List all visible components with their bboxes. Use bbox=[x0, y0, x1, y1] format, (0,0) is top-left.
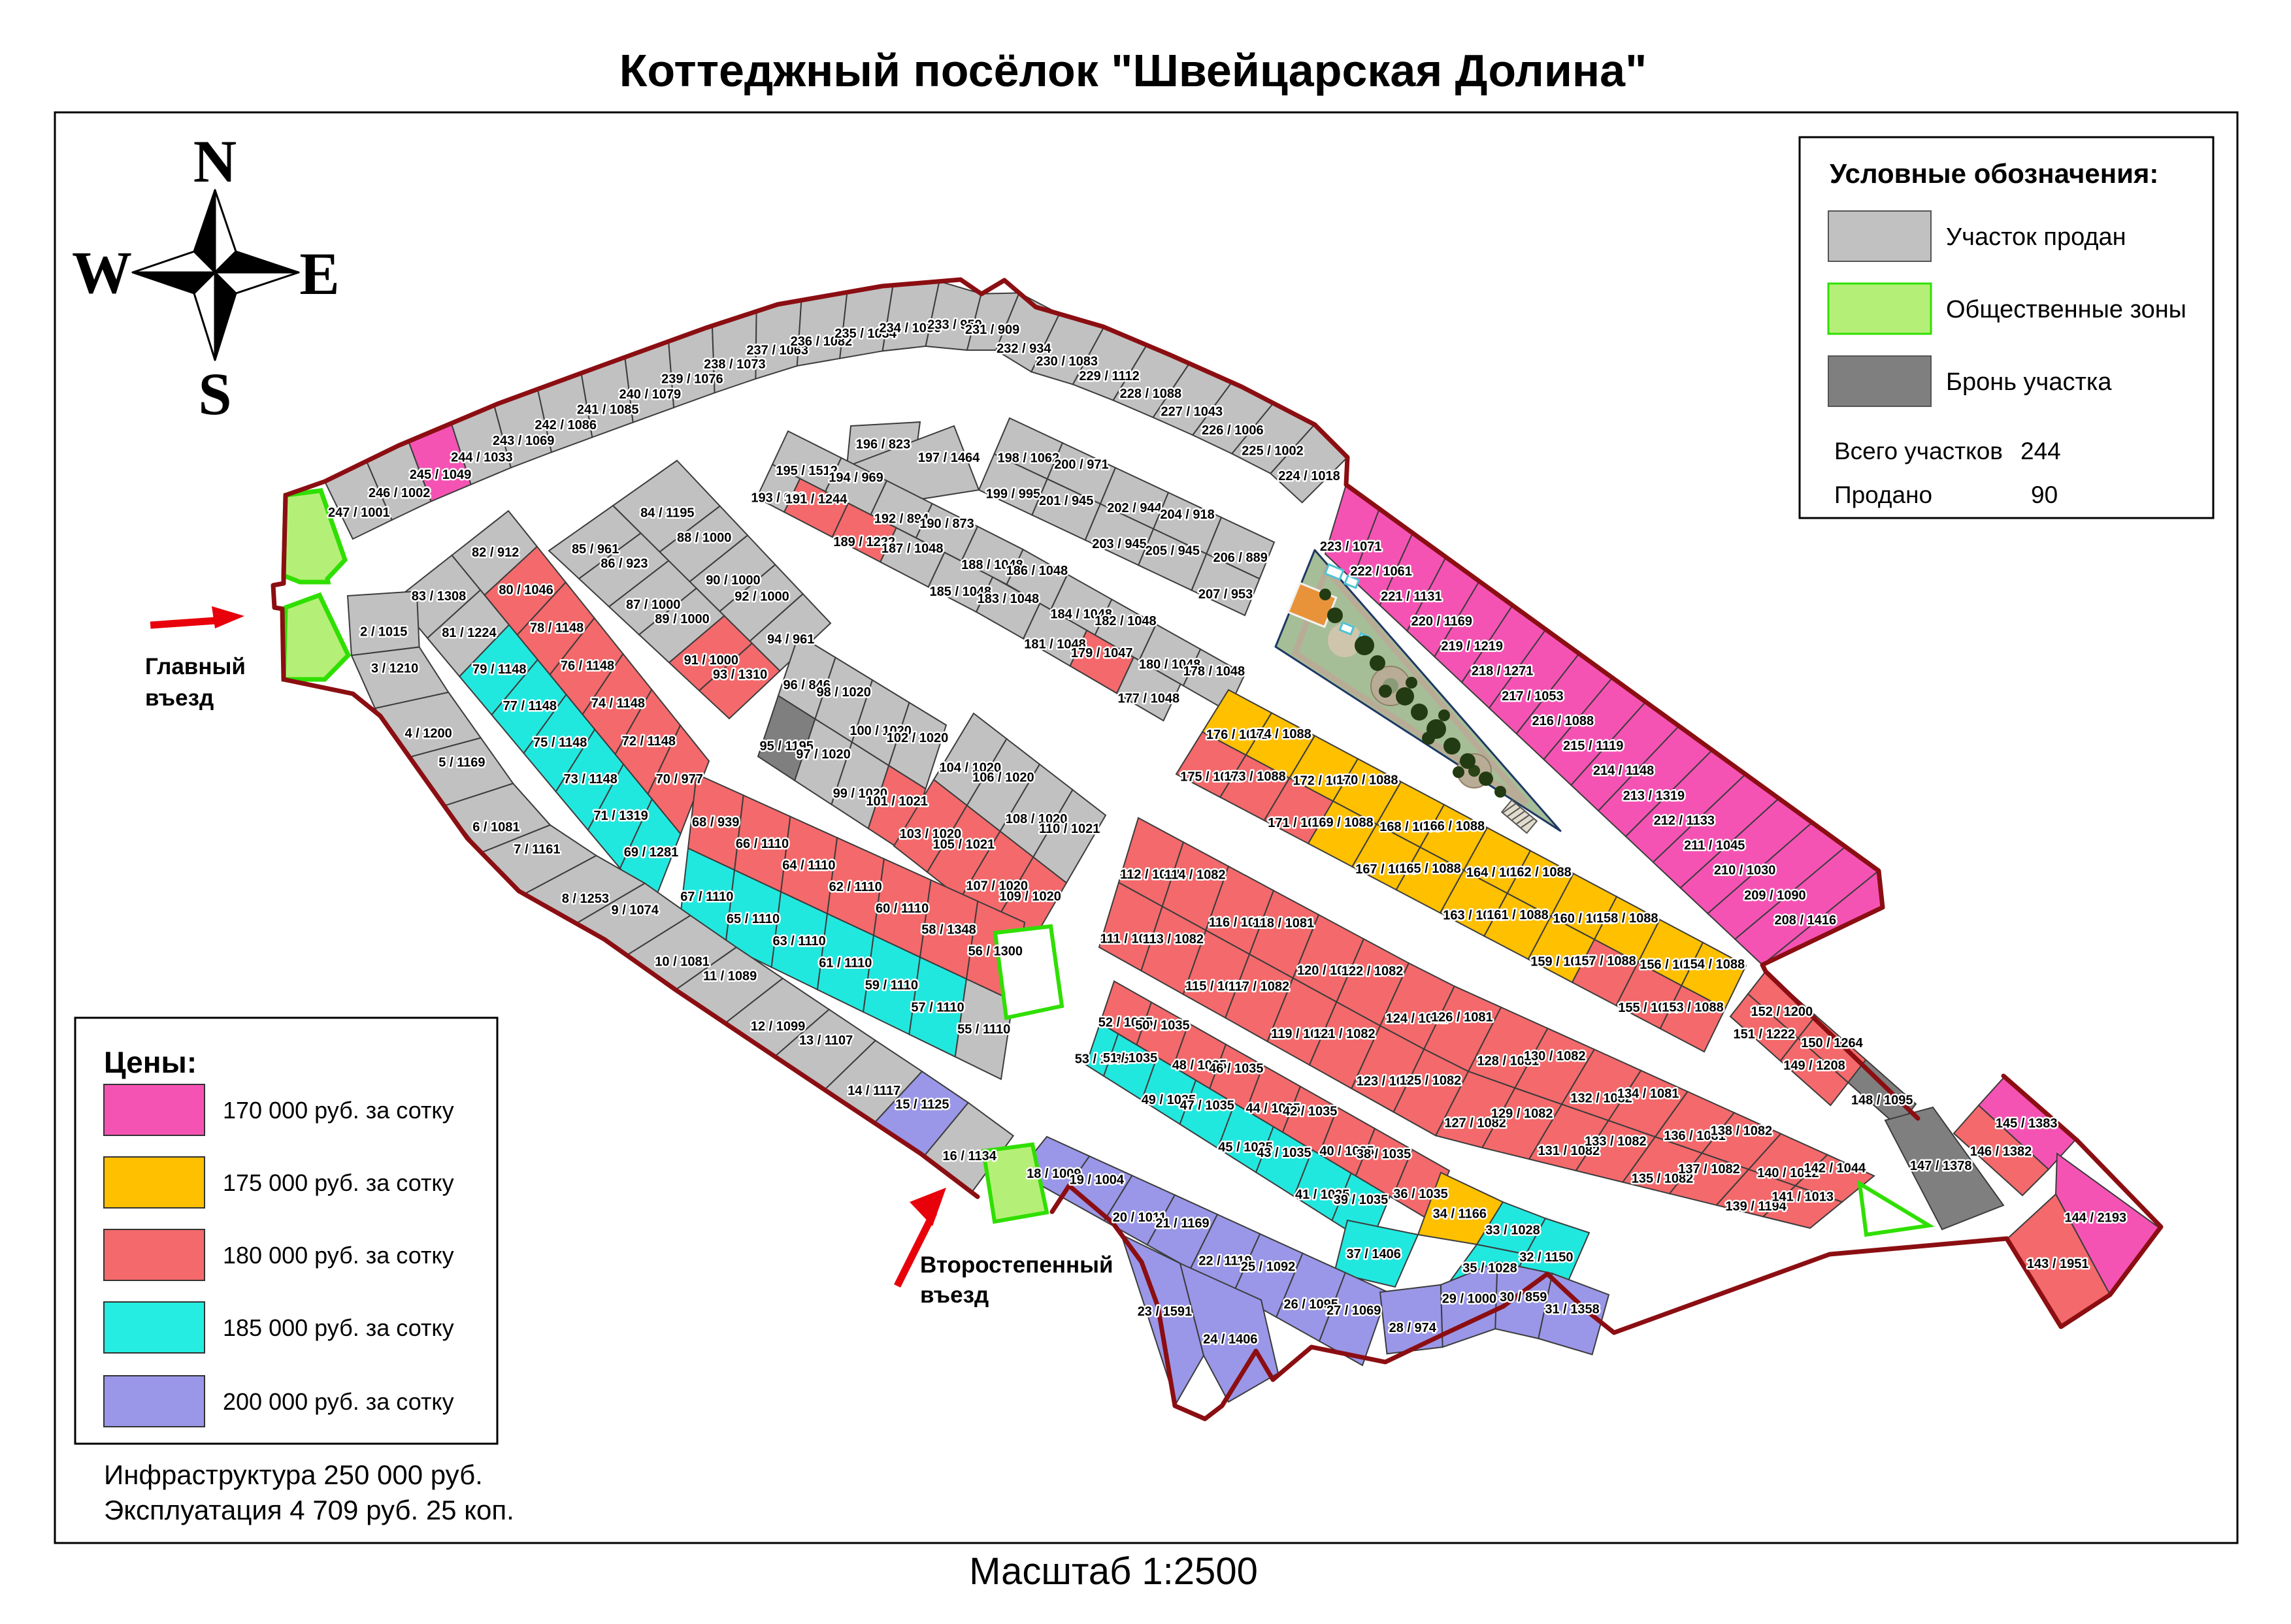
svg-text:32 / 1150: 32 / 1150 bbox=[1519, 1250, 1573, 1265]
svg-text:201 / 945: 201 / 945 bbox=[1039, 494, 1093, 508]
svg-text:37 / 1406: 37 / 1406 bbox=[1346, 1247, 1400, 1261]
svg-text:138 / 1082: 138 / 1082 bbox=[1711, 1124, 1773, 1139]
svg-text:231 / 909: 231 / 909 bbox=[965, 323, 1019, 337]
svg-text:79 / 1148: 79 / 1148 bbox=[472, 662, 526, 677]
svg-text:82 / 912: 82 / 912 bbox=[472, 545, 519, 560]
svg-text:161 / 1088: 161 / 1088 bbox=[1487, 908, 1549, 922]
svg-text:86 / 923: 86 / 923 bbox=[601, 557, 648, 571]
svg-text:66 / 1110: 66 / 1110 bbox=[736, 837, 789, 851]
svg-text:137 / 1082: 137 / 1082 bbox=[1678, 1162, 1740, 1177]
svg-text:148 / 1095: 148 / 1095 bbox=[1851, 1094, 1913, 1108]
svg-text:19 / 1004: 19 / 1004 bbox=[1070, 1173, 1125, 1188]
svg-text:30 / 859: 30 / 859 bbox=[1500, 1290, 1547, 1305]
svg-text:212 / 1133: 212 / 1133 bbox=[1654, 813, 1715, 828]
svg-text:180 000 руб. за сотку: 180 000 руб. за сотку bbox=[223, 1242, 454, 1269]
svg-text:68 / 939: 68 / 939 bbox=[692, 815, 739, 830]
svg-text:133 / 1082: 133 / 1082 bbox=[1585, 1134, 1647, 1148]
svg-text:143 / 1951: 143 / 1951 bbox=[2027, 1257, 2089, 1271]
svg-text:15 / 1125: 15 / 1125 bbox=[895, 1097, 949, 1112]
svg-text:81 / 1224: 81 / 1224 bbox=[442, 626, 497, 640]
svg-text:62 / 1110: 62 / 1110 bbox=[829, 880, 882, 894]
svg-text:74 / 1148: 74 / 1148 bbox=[591, 696, 645, 711]
svg-text:75 / 1148: 75 / 1148 bbox=[533, 736, 587, 750]
svg-text:126 / 1081: 126 / 1081 bbox=[1431, 1010, 1493, 1024]
svg-text:122 / 1082: 122 / 1082 bbox=[1342, 964, 1404, 979]
svg-text:Всего участков: Всего участков bbox=[1834, 438, 2003, 464]
svg-text:229 / 1112: 229 / 1112 bbox=[1079, 369, 1139, 383]
svg-text:33 / 1028: 33 / 1028 bbox=[1485, 1224, 1540, 1238]
svg-text:N: N bbox=[193, 128, 237, 195]
svg-text:14 / 1117: 14 / 1117 bbox=[848, 1084, 900, 1098]
svg-text:101 / 1021: 101 / 1021 bbox=[866, 794, 928, 809]
svg-text:173 / 1088: 173 / 1088 bbox=[1224, 770, 1286, 784]
svg-text:65 / 1110: 65 / 1110 bbox=[727, 912, 780, 926]
svg-text:10 / 1081: 10 / 1081 bbox=[655, 954, 709, 969]
svg-text:12 / 1099: 12 / 1099 bbox=[751, 1020, 805, 1034]
svg-text:29 / 1000: 29 / 1000 bbox=[1442, 1292, 1496, 1307]
svg-text:207 / 953: 207 / 953 bbox=[1198, 587, 1253, 602]
svg-text:59 / 1110: 59 / 1110 bbox=[865, 978, 918, 992]
svg-text:185 000 руб. за сотку: 185 000 руб. за сотку bbox=[223, 1314, 454, 1341]
svg-text:60 / 1110: 60 / 1110 bbox=[876, 901, 929, 916]
svg-text:244: 244 bbox=[2020, 438, 2061, 464]
svg-text:55 / 1110: 55 / 1110 bbox=[957, 1022, 1010, 1037]
svg-text:38 / 1035: 38 / 1035 bbox=[1357, 1147, 1411, 1161]
svg-text:211 / 1045: 211 / 1045 bbox=[1684, 839, 1745, 853]
svg-text:Главный: Главный bbox=[145, 654, 246, 679]
svg-text:227 / 1043: 227 / 1043 bbox=[1161, 405, 1223, 419]
svg-text:244 / 1033: 244 / 1033 bbox=[451, 451, 513, 465]
svg-text:56 / 1300: 56 / 1300 bbox=[968, 945, 1023, 959]
svg-text:182 / 1048: 182 / 1048 bbox=[1095, 614, 1157, 628]
svg-text:Условные обозначения:: Условные обозначения: bbox=[1830, 158, 2158, 189]
svg-text:78 / 1148: 78 / 1148 bbox=[530, 621, 584, 636]
svg-text:72 / 1148: 72 / 1148 bbox=[622, 734, 676, 749]
svg-text:228 / 1088: 228 / 1088 bbox=[1120, 387, 1182, 401]
svg-text:186 / 1048: 186 / 1048 bbox=[1006, 564, 1068, 578]
svg-text:11 / 1089: 11 / 1089 bbox=[703, 969, 757, 983]
svg-text:98 / 1020: 98 / 1020 bbox=[816, 685, 870, 700]
svg-text:198 / 1062: 198 / 1062 bbox=[998, 451, 1060, 466]
svg-text:206 / 889: 206 / 889 bbox=[1213, 551, 1267, 565]
svg-text:102 / 1020: 102 / 1020 bbox=[887, 731, 949, 745]
svg-text:197 / 1464: 197 / 1464 bbox=[918, 451, 980, 465]
svg-text:170 000 руб. за сотку: 170 000 руб. за сотку bbox=[223, 1097, 454, 1124]
svg-text:106 / 1020: 106 / 1020 bbox=[972, 771, 1034, 785]
svg-text:5 / 1169: 5 / 1169 bbox=[438, 755, 485, 770]
svg-text:203 / 945: 203 / 945 bbox=[1092, 537, 1146, 551]
svg-text:90 / 1000: 90 / 1000 bbox=[706, 574, 760, 588]
svg-text:85 / 961: 85 / 961 bbox=[572, 542, 619, 557]
svg-text:158 / 1088: 158 / 1088 bbox=[1596, 911, 1658, 926]
svg-text:113 / 1082: 113 / 1082 bbox=[1143, 932, 1204, 947]
svg-text:179 / 1047: 179 / 1047 bbox=[1071, 646, 1133, 660]
svg-text:80 / 1046: 80 / 1046 bbox=[499, 583, 553, 598]
svg-text:31 / 1358: 31 / 1358 bbox=[1545, 1302, 1599, 1316]
svg-text:Масштаб 1:2500: Масштаб 1:2500 bbox=[969, 1550, 1258, 1593]
svg-text:въезд: въезд bbox=[920, 1282, 989, 1308]
svg-text:217 / 1053: 217 / 1053 bbox=[1502, 689, 1564, 704]
svg-text:Коттеджный посёлок "Швейцарска: Коттеджный посёлок "Швейцарская Долина" bbox=[619, 45, 1647, 96]
svg-text:210 / 1030: 210 / 1030 bbox=[1714, 864, 1776, 878]
svg-text:105 / 1021: 105 / 1021 bbox=[933, 837, 995, 852]
svg-text:142 / 1044: 142 / 1044 bbox=[1804, 1161, 1866, 1176]
svg-text:91 / 1000: 91 / 1000 bbox=[684, 653, 738, 668]
svg-text:23 / 1591: 23 / 1591 bbox=[1138, 1305, 1192, 1319]
svg-text:7 / 1161: 7 / 1161 bbox=[514, 842, 560, 856]
svg-text:W: W bbox=[72, 239, 132, 306]
svg-text:145 / 1383: 145 / 1383 bbox=[1996, 1116, 2058, 1131]
svg-text:35 / 1028: 35 / 1028 bbox=[1462, 1261, 1517, 1276]
svg-text:162 / 1088: 162 / 1088 bbox=[1509, 866, 1572, 880]
svg-text:169 / 1088: 169 / 1088 bbox=[1311, 816, 1374, 830]
svg-text:125 / 1082: 125 / 1082 bbox=[1400, 1074, 1462, 1088]
svg-text:46 / 1035: 46 / 1035 bbox=[1209, 1062, 1263, 1076]
svg-text:28 / 974: 28 / 974 bbox=[1389, 1321, 1437, 1335]
svg-text:Инфраструктура 250 000 руб.: Инфраструктура 250 000 руб. bbox=[104, 1459, 483, 1490]
svg-text:57 / 1110: 57 / 1110 bbox=[911, 1000, 964, 1015]
svg-text:196 / 823: 196 / 823 bbox=[856, 438, 910, 452]
svg-text:200 / 971: 200 / 971 bbox=[1054, 458, 1108, 472]
svg-text:121 / 1082: 121 / 1082 bbox=[1313, 1027, 1376, 1041]
svg-text:21 / 1169: 21 / 1169 bbox=[1155, 1216, 1209, 1231]
svg-text:34 / 1166: 34 / 1166 bbox=[1433, 1207, 1487, 1222]
svg-text:243 / 1069: 243 / 1069 bbox=[493, 434, 555, 448]
svg-text:247 / 1001: 247 / 1001 bbox=[328, 506, 390, 520]
svg-text:191 / 1244: 191 / 1244 bbox=[785, 492, 848, 506]
svg-text:89 / 1000: 89 / 1000 bbox=[655, 612, 709, 626]
svg-text:241 / 1085: 241 / 1085 bbox=[577, 403, 639, 417]
svg-text:Бронь участка: Бронь участка bbox=[1946, 368, 2112, 396]
svg-text:183 / 1048: 183 / 1048 bbox=[978, 592, 1040, 606]
svg-text:222 / 1061: 222 / 1061 bbox=[1350, 564, 1412, 579]
svg-text:64 / 1110: 64 / 1110 bbox=[782, 858, 835, 873]
svg-text:Второстепенный: Второстепенный bbox=[920, 1252, 1113, 1278]
svg-text:144 / 2193: 144 / 2193 bbox=[2065, 1211, 2127, 1226]
svg-text:209 / 1090: 209 / 1090 bbox=[1744, 888, 1806, 903]
svg-text:166 / 1088: 166 / 1088 bbox=[1423, 819, 1485, 834]
svg-text:Эксплуатация 4 709 руб. 25 коп: Эксплуатация 4 709 руб. 25 коп. bbox=[104, 1495, 514, 1525]
svg-text:240 / 1079: 240 / 1079 bbox=[619, 387, 682, 402]
svg-text:151 / 1222: 151 / 1222 bbox=[1734, 1028, 1796, 1042]
svg-text:223 / 1071: 223 / 1071 bbox=[1320, 540, 1382, 554]
svg-text:61 / 1110: 61 / 1110 bbox=[819, 956, 872, 971]
svg-text:94 / 961: 94 / 961 bbox=[767, 632, 814, 647]
svg-text:71 / 1319: 71 / 1319 bbox=[593, 809, 648, 823]
svg-text:154 / 1088: 154 / 1088 bbox=[1683, 957, 1745, 971]
svg-text:187 / 1048: 187 / 1048 bbox=[882, 542, 944, 556]
svg-text:224 / 1018: 224 / 1018 bbox=[1278, 469, 1340, 483]
svg-text:въезд: въезд bbox=[145, 685, 214, 711]
svg-text:43 / 1035: 43 / 1035 bbox=[1257, 1146, 1311, 1160]
svg-text:83 / 1308: 83 / 1308 bbox=[412, 589, 466, 604]
svg-text:110 / 1021: 110 / 1021 bbox=[1039, 822, 1100, 836]
svg-text:230 / 1083: 230 / 1083 bbox=[1036, 355, 1098, 369]
svg-text:69 / 1281: 69 / 1281 bbox=[624, 845, 678, 860]
svg-text:200 000 руб. за сотку: 200 000 руб. за сотку bbox=[223, 1388, 454, 1415]
svg-text:16 / 1134: 16 / 1134 bbox=[943, 1149, 997, 1163]
svg-text:134 / 1081: 134 / 1081 bbox=[1617, 1086, 1679, 1101]
svg-text:13 / 1107: 13 / 1107 bbox=[799, 1033, 853, 1048]
svg-text:36 / 1035: 36 / 1035 bbox=[1393, 1187, 1447, 1201]
svg-text:153 / 1088: 153 / 1088 bbox=[1662, 1000, 1724, 1015]
svg-text:175 000 руб. за сотку: 175 000 руб. за сотку bbox=[223, 1169, 454, 1196]
svg-text:165 / 1088: 165 / 1088 bbox=[1399, 862, 1461, 876]
svg-text:177 / 1048: 177 / 1048 bbox=[1118, 692, 1180, 706]
svg-text:214 / 1148: 214 / 1148 bbox=[1593, 764, 1654, 778]
svg-text:4 / 1200: 4 / 1200 bbox=[404, 726, 452, 741]
svg-text:178 / 1048: 178 / 1048 bbox=[1183, 664, 1245, 679]
svg-text:149 / 1208: 149 / 1208 bbox=[1783, 1059, 1845, 1073]
svg-text:226 / 1006: 226 / 1006 bbox=[1202, 423, 1264, 438]
svg-text:202 / 944: 202 / 944 bbox=[1107, 501, 1162, 515]
svg-text:24 / 1406: 24 / 1406 bbox=[1203, 1332, 1257, 1346]
svg-text:146 / 1382: 146 / 1382 bbox=[1970, 1145, 2032, 1159]
svg-text:194 / 969: 194 / 969 bbox=[829, 470, 883, 485]
svg-text:150 / 1264: 150 / 1264 bbox=[1801, 1036, 1863, 1050]
svg-text:213 / 1319: 213 / 1319 bbox=[1623, 788, 1685, 803]
svg-text:204 / 918: 204 / 918 bbox=[1160, 508, 1214, 522]
svg-text:87 / 1000: 87 / 1000 bbox=[626, 598, 680, 612]
svg-text:190 / 873: 190 / 873 bbox=[919, 517, 974, 531]
svg-text:Общественные зоны: Общественные зоны bbox=[1946, 296, 2186, 323]
svg-text:118 / 1081: 118 / 1081 bbox=[1253, 916, 1314, 930]
svg-text:84 / 1195: 84 / 1195 bbox=[640, 506, 694, 521]
svg-text:6 / 1081: 6 / 1081 bbox=[472, 820, 519, 834]
svg-text:Цены:: Цены: bbox=[104, 1045, 197, 1079]
svg-text:93 / 1310: 93 / 1310 bbox=[713, 668, 767, 682]
svg-text:220 / 1169: 220 / 1169 bbox=[1411, 614, 1472, 628]
svg-text:246 / 1002: 246 / 1002 bbox=[369, 486, 431, 500]
svg-text:238 / 1073: 238 / 1073 bbox=[704, 357, 766, 372]
svg-text:117 / 1082: 117 / 1082 bbox=[1228, 980, 1289, 994]
svg-text:3 / 1210: 3 / 1210 bbox=[371, 661, 418, 675]
svg-text:2 / 1015: 2 / 1015 bbox=[360, 625, 407, 640]
svg-text:50 / 1035: 50 / 1035 bbox=[1135, 1018, 1189, 1033]
svg-text:221 / 1131: 221 / 1131 bbox=[1381, 589, 1442, 604]
svg-text:147 / 1378: 147 / 1378 bbox=[1910, 1159, 1972, 1173]
svg-text:215 / 1119: 215 / 1119 bbox=[1563, 739, 1623, 753]
svg-text:225 / 1002: 225 / 1002 bbox=[1242, 444, 1304, 459]
svg-text:205 / 945: 205 / 945 bbox=[1145, 544, 1200, 559]
svg-text:70 / 977: 70 / 977 bbox=[656, 772, 703, 787]
svg-text:97 / 1020: 97 / 1020 bbox=[796, 747, 850, 762]
svg-text:E: E bbox=[299, 240, 339, 307]
svg-text:170 / 1088: 170 / 1088 bbox=[1336, 773, 1398, 788]
svg-text:76 / 1148: 76 / 1148 bbox=[561, 658, 614, 673]
svg-text:239 / 1076: 239 / 1076 bbox=[661, 372, 723, 387]
svg-text:88 / 1000: 88 / 1000 bbox=[677, 530, 731, 545]
svg-text:199 / 995: 199 / 995 bbox=[986, 487, 1040, 502]
svg-text:219 / 1219: 219 / 1219 bbox=[1441, 640, 1503, 654]
svg-text:129 / 1082: 129 / 1082 bbox=[1491, 1107, 1553, 1121]
svg-text:216 / 1088: 216 / 1088 bbox=[1532, 714, 1594, 728]
svg-text:77 / 1148: 77 / 1148 bbox=[503, 699, 557, 713]
svg-text:39 / 1035: 39 / 1035 bbox=[1334, 1193, 1388, 1207]
svg-text:114 / 1082: 114 / 1082 bbox=[1164, 868, 1225, 883]
svg-text:51 / 1035: 51 / 1035 bbox=[1103, 1051, 1157, 1065]
svg-text:157 / 1088: 157 / 1088 bbox=[1574, 954, 1636, 969]
svg-text:208 / 1416: 208 / 1416 bbox=[1775, 913, 1837, 928]
svg-text:141 / 1013: 141 / 1013 bbox=[1772, 1190, 1834, 1204]
svg-text:Участок продан: Участок продан bbox=[1946, 223, 2126, 251]
svg-text:109 / 1020: 109 / 1020 bbox=[999, 889, 1061, 903]
svg-text:174 / 1088: 174 / 1088 bbox=[1249, 727, 1311, 741]
svg-text:152 / 1200: 152 / 1200 bbox=[1751, 1005, 1813, 1019]
svg-text:S: S bbox=[198, 361, 231, 427]
svg-text:90: 90 bbox=[2031, 481, 2058, 508]
svg-text:73 / 1148: 73 / 1148 bbox=[564, 772, 618, 787]
svg-text:8 / 1253: 8 / 1253 bbox=[562, 892, 609, 906]
svg-text:25 / 1092: 25 / 1092 bbox=[1241, 1260, 1295, 1275]
svg-text:245 / 1049: 245 / 1049 bbox=[410, 468, 472, 482]
svg-text:Продано: Продано bbox=[1834, 481, 1932, 508]
svg-text:58 / 1348: 58 / 1348 bbox=[921, 923, 976, 937]
svg-text:63 / 1110: 63 / 1110 bbox=[772, 934, 825, 949]
svg-text:9 / 1074: 9 / 1074 bbox=[612, 903, 659, 917]
svg-text:92 / 1000: 92 / 1000 bbox=[734, 590, 789, 604]
svg-text:27 / 1069: 27 / 1069 bbox=[1327, 1303, 1381, 1318]
svg-text:67 / 1110: 67 / 1110 bbox=[680, 890, 733, 904]
svg-text:130 / 1082: 130 / 1082 bbox=[1524, 1049, 1586, 1064]
svg-text:47 / 1035: 47 / 1035 bbox=[1179, 1098, 1234, 1112]
svg-text:218 / 1271: 218 / 1271 bbox=[1472, 664, 1534, 679]
svg-text:242 / 1086: 242 / 1086 bbox=[535, 418, 597, 432]
svg-text:42 / 1035: 42 / 1035 bbox=[1283, 1105, 1337, 1119]
